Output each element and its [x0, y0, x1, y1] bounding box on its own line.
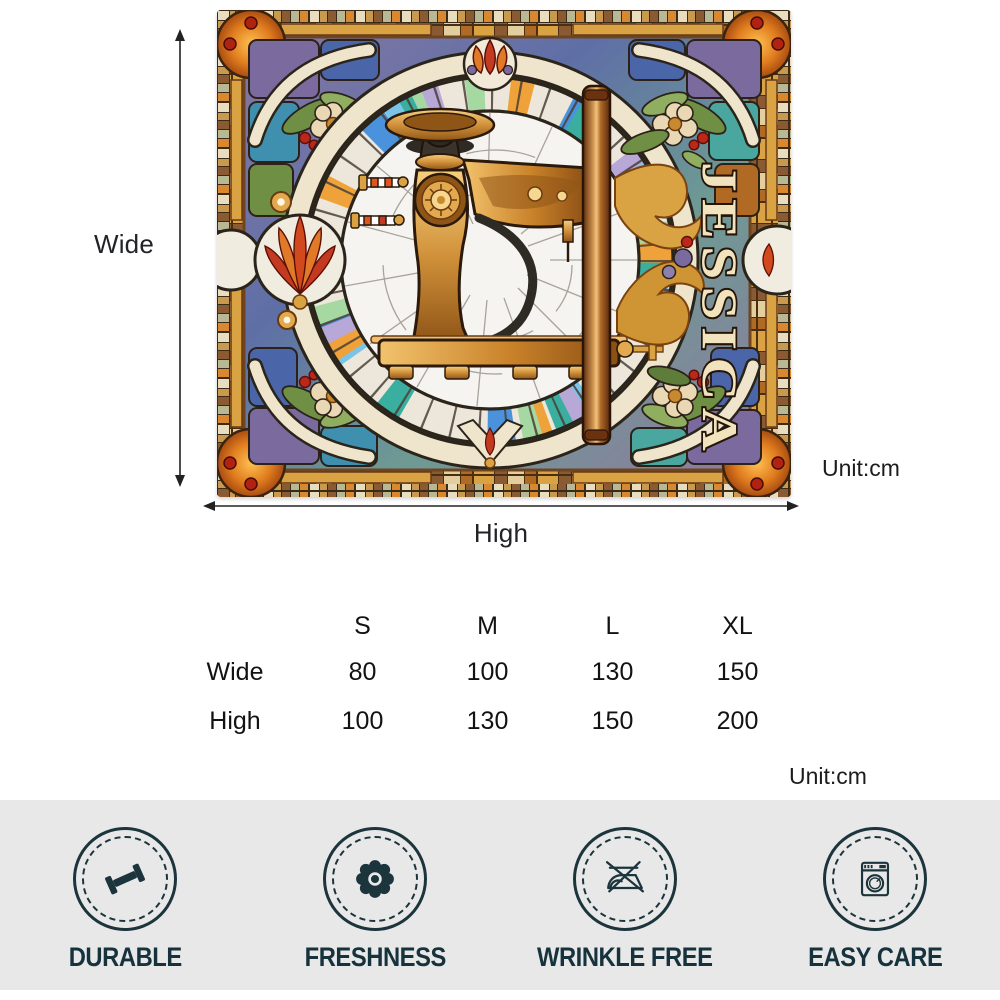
- feature-freshness: FRESHNESS: [250, 800, 500, 990]
- feature-easy-care: EASY CARE: [750, 800, 1000, 990]
- wide-l: 130: [550, 648, 675, 697]
- unit-note-bottom: Unit:cm: [789, 763, 867, 790]
- washing-machine-icon: [848, 852, 902, 906]
- high-m: 130: [425, 697, 550, 746]
- wrinkle-free-badge: [573, 827, 677, 931]
- high-s: 100: [300, 697, 425, 746]
- product-size-guide-page: JESSICA Wide High Unit:cm S M L XL Wide …: [0, 0, 1000, 1000]
- care-feature-bar: DURABLE FRESHNESS: [0, 800, 1000, 990]
- no-iron-icon: [597, 851, 653, 907]
- flower-icon: [348, 852, 402, 906]
- size-col-l: L: [550, 604, 675, 648]
- easy-care-badge: [823, 827, 927, 931]
- size-table: S M L XL Wide 80 100 130 150 High 100 13…: [170, 604, 800, 746]
- feature-wrinkle-free: WRINKLE FREE: [500, 800, 750, 990]
- wood-pillar: [583, 86, 610, 444]
- feature-wrinkle-free-label: WRINKLE FREE: [525, 942, 725, 973]
- wide-xl: 150: [675, 648, 800, 697]
- wide-m: 100: [425, 648, 550, 697]
- blanket-artwork: JESSICA: [217, 10, 791, 497]
- size-col-m: M: [425, 604, 550, 648]
- size-col-xl: XL: [675, 604, 800, 648]
- wide-dimension-arrow: [172, 28, 188, 488]
- top-crest-flower: [464, 38, 516, 90]
- feature-freshness-label: FRESHNESS: [295, 942, 456, 973]
- high-xl: 200: [675, 697, 800, 746]
- row-label-high: High: [170, 697, 300, 746]
- feature-durable-label: DURABLE: [61, 942, 190, 973]
- dumbbell-icon: [98, 852, 152, 906]
- feature-durable: DURABLE: [0, 800, 250, 990]
- row-label-wide: Wide: [170, 648, 300, 697]
- high-l: 150: [550, 697, 675, 746]
- personalized-name: JESSICA: [692, 162, 748, 458]
- unit-note-top: Unit:cm: [822, 455, 900, 482]
- feature-easy-care-label: EASY CARE: [799, 942, 952, 973]
- product-image-stained-glass-blanket: JESSICA: [217, 10, 791, 497]
- durable-badge: [73, 827, 177, 931]
- size-table-corner: [170, 604, 300, 648]
- size-col-s: S: [300, 604, 425, 648]
- freshness-badge: [323, 827, 427, 931]
- high-dimension-arrow: [202, 498, 800, 514]
- wide-s: 80: [300, 648, 425, 697]
- wide-dimension-label: Wide: [86, 229, 162, 260]
- high-dimension-label: High: [455, 518, 547, 549]
